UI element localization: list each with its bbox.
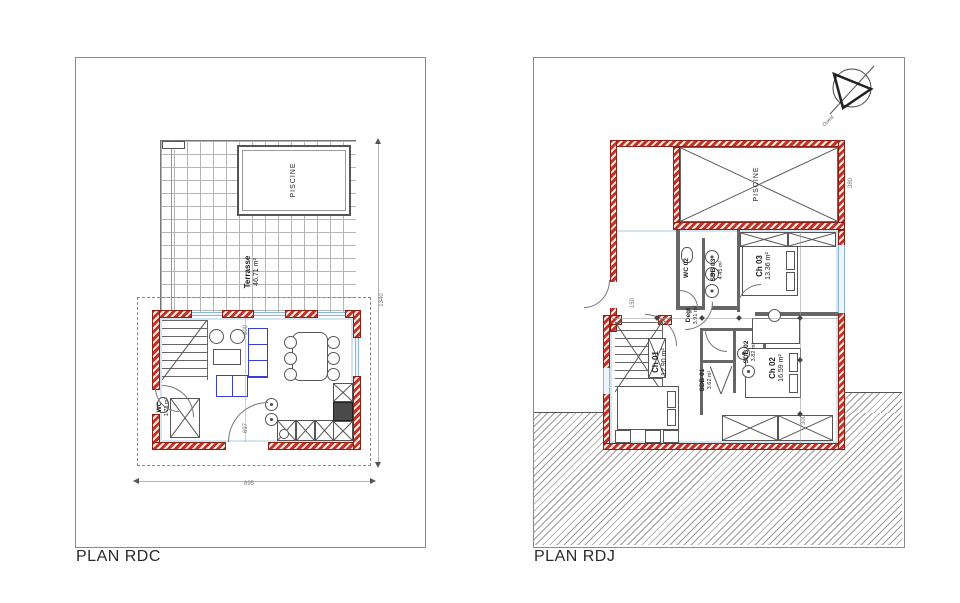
plan-rdc-title: PLAN RDC xyxy=(76,548,161,566)
wall-segment xyxy=(152,310,160,390)
wall-segment xyxy=(152,442,226,450)
dimension-label: 1340 xyxy=(378,286,386,314)
sdb03-label: SDB 03 4.45 m² xyxy=(708,247,726,293)
dimension-line xyxy=(612,318,838,319)
desk-chair xyxy=(768,309,781,322)
bedside-cabinet xyxy=(615,430,631,443)
pool-rdj-label: PISCINE xyxy=(751,149,763,219)
sdb02-label: SDB 02 3.82 m² xyxy=(741,330,759,374)
oven xyxy=(333,402,353,421)
chair xyxy=(284,368,297,381)
wall-segment xyxy=(285,310,318,318)
dimension-arrow xyxy=(375,462,381,468)
sofa xyxy=(248,328,268,378)
chair xyxy=(284,352,297,365)
bed-ch01 xyxy=(617,386,679,430)
partition-wall xyxy=(712,306,737,310)
ch03-label: Ch 03 13.36 m² xyxy=(755,241,773,291)
wc02-label: WC 02 xyxy=(682,248,692,288)
coffee-table xyxy=(213,349,241,365)
wall-segment xyxy=(838,140,845,230)
degt-label: Degt 3.91 m² xyxy=(683,293,701,337)
dimension-arrow xyxy=(375,138,381,144)
chair xyxy=(327,336,340,349)
wall-segment xyxy=(673,222,845,230)
ch01-label: Ch 01 12.90 m² xyxy=(651,337,669,387)
chair xyxy=(327,368,340,381)
armchair xyxy=(209,329,224,344)
wardrobe xyxy=(722,415,778,441)
dimension-label: 895 xyxy=(244,472,254,490)
wall-segment xyxy=(268,442,361,450)
dimension-arrow xyxy=(370,478,376,484)
wall-segment xyxy=(610,140,845,147)
dimension-line xyxy=(137,481,372,482)
dimension-label: 800 xyxy=(242,317,250,343)
sdb01-label: SDB 01 3.62 m² xyxy=(697,358,715,402)
kitchen-unit xyxy=(315,420,334,441)
door-gap xyxy=(610,282,617,308)
dimension-label: 697 xyxy=(242,415,250,441)
bedside-cabinet xyxy=(645,430,661,443)
kitchen-unit xyxy=(333,421,353,441)
hob xyxy=(279,429,289,439)
window xyxy=(603,368,610,394)
partition-wall xyxy=(733,330,736,393)
dimension-label: 380 xyxy=(847,170,855,196)
wall-segment xyxy=(353,310,361,338)
sofa xyxy=(216,375,248,397)
kitchen-unit xyxy=(296,420,315,441)
bedside-cabinet xyxy=(663,430,679,443)
ch02-label: Ch 02 16.59 m² xyxy=(768,343,786,393)
plan-rdj-title: PLAN RDJ xyxy=(534,548,615,566)
floor-plan-sheet: PISCINE Terrasse 46.71 m² Séjour 35.82 m… xyxy=(0,0,960,603)
chair xyxy=(284,336,297,349)
dimension-label: 300 xyxy=(800,407,808,433)
wall-segment xyxy=(603,443,845,450)
terrace-edge-line xyxy=(171,140,172,315)
window xyxy=(355,338,359,376)
desk xyxy=(752,318,800,344)
pool-rdc-label: PISCINE xyxy=(288,150,300,210)
window xyxy=(838,245,845,313)
kitchen-unit xyxy=(333,383,353,402)
dining-table xyxy=(292,332,328,381)
chair xyxy=(327,352,340,365)
wardrobe xyxy=(788,232,836,247)
wall-segment xyxy=(353,376,361,450)
terrace-corner-detail xyxy=(162,141,185,149)
terrasse-label: Terrasse 46.71 m² xyxy=(242,242,262,302)
ground-hatch xyxy=(845,392,902,413)
dimension-label: 150 xyxy=(629,290,637,316)
dimension-arrow xyxy=(133,478,139,484)
staircase-rdc xyxy=(162,320,208,380)
wall-segment xyxy=(673,147,680,223)
